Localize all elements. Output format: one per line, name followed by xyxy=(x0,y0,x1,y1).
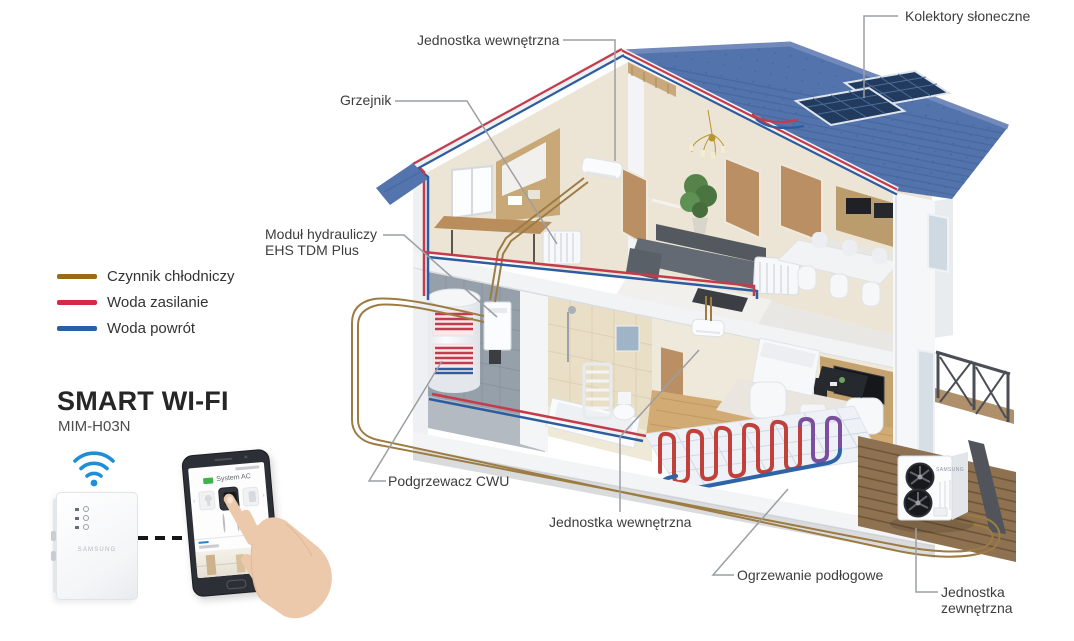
module-brand-text: SAMSUNG xyxy=(57,547,137,553)
outdoor-unit-brand-text: SAMSUNG xyxy=(936,467,964,473)
callout-indoor-unit-bottom: Jednostka wewnętrzna xyxy=(549,514,691,530)
legend-label-refrigerant: Czynnik chłodniczy xyxy=(107,268,235,285)
product-model: MIM-H03N xyxy=(58,418,131,435)
outdoor-unit: SAMSUNG xyxy=(890,452,974,533)
legend-label-water-supply: Woda zasilanie xyxy=(107,294,208,311)
armchair xyxy=(750,382,786,418)
bathroom xyxy=(520,291,652,462)
smart-wifi-module-device: SAMSUNG xyxy=(56,492,138,600)
radiator-attic xyxy=(543,231,581,264)
toilet xyxy=(613,404,635,420)
wifi-icon xyxy=(68,448,120,490)
callout-outdoor-unit-line2: zewnętrzna xyxy=(941,600,1013,616)
fingernail xyxy=(227,496,233,503)
door xyxy=(622,168,647,246)
legend-swatch-water-supply xyxy=(57,300,97,305)
callout-radiator: Grzejnik xyxy=(340,92,391,108)
module-mount-clip xyxy=(51,531,56,541)
hand xyxy=(190,452,345,641)
mirror xyxy=(616,326,639,351)
module-piping xyxy=(489,350,501,364)
callout-solar-collectors: Kolektory słoneczne xyxy=(905,8,1030,24)
legend-row-water-return: Woda powrót xyxy=(57,320,235,337)
legend-swatch-refrigerant xyxy=(57,274,97,279)
legend-row-refrigerant: Czynnik chłodniczy xyxy=(57,268,235,285)
legend-label-water-return: Woda powrót xyxy=(107,320,195,337)
module-led-indicators xyxy=(75,506,89,533)
pipe-legend: Czynnik chłodniczy Woda zasilanie Woda p… xyxy=(57,268,235,346)
callout-hydraulic-module-line2: EHS TDM Plus xyxy=(265,242,377,258)
legend-swatch-water-return xyxy=(57,326,97,331)
product-title: SMART WI-FI xyxy=(57,386,229,417)
callout-outdoor-unit-line1: Jednostka xyxy=(941,584,1013,600)
callout-dhw-heater: Podgrzewacz CWU xyxy=(388,473,509,489)
infographic-canvas: SAMSUNG Kolektory słoneczne Jednostka we… xyxy=(0,0,1074,641)
fan xyxy=(907,464,934,491)
callout-hydraulic-module-line1: Moduł hydrauliczy xyxy=(265,226,377,242)
upper-window xyxy=(928,214,948,272)
sink xyxy=(618,392,631,404)
callout-indoor-unit-top: Jednostka wewnętrzna xyxy=(417,32,559,48)
callout-hydraulic-module: Moduł hydrauliczy EHS TDM Plus xyxy=(265,226,377,258)
module-side-edge xyxy=(53,499,57,593)
callout-floor-heating: Ogrzewanie podłogowe xyxy=(737,567,883,583)
indoor-unit-living xyxy=(691,319,724,337)
callout-outdoor-unit: Jednostka zewnętrzna xyxy=(941,584,1013,616)
module-mount-clip xyxy=(51,551,56,561)
legend-row-water-supply: Woda zasilanie xyxy=(57,294,235,311)
fan xyxy=(905,490,932,517)
oven xyxy=(846,198,871,214)
